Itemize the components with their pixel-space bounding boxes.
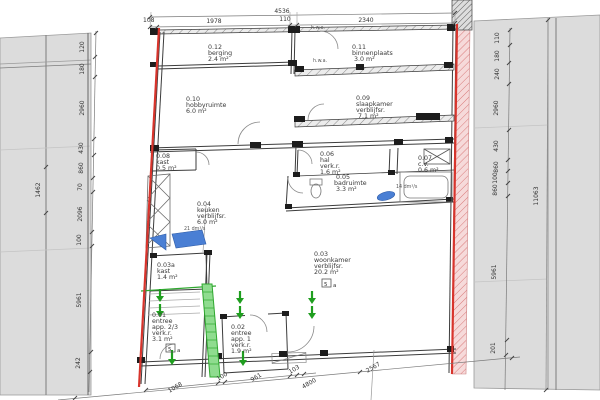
dim-label: 110 (279, 16, 291, 23)
dim-label: 2096 (77, 206, 84, 221)
room-area-label: 3.0 m² (354, 56, 375, 63)
dim-label: 860 (492, 184, 499, 196)
room-area-label: 20.2 m² (314, 269, 339, 276)
dim-label: 180 (79, 63, 86, 75)
dim-label: 2960 (79, 100, 86, 115)
ventilation-note: 21 dm³/s (184, 226, 206, 232)
dim-label: 2567 (365, 361, 382, 375)
dim-label: 100 (76, 234, 83, 246)
dim-label: 110 (494, 32, 501, 44)
dim-label: 240 (494, 68, 501, 80)
dim-label: 4536 (274, 8, 289, 15)
room-area-label: 1.4 m² (157, 274, 178, 281)
dim-label: 860 (78, 162, 85, 174)
floor-plan-drawing: 4536 108 1978 110 2340 120 180 2960 430 … (0, 0, 600, 400)
dim-label: 1978 (206, 18, 221, 25)
room-area-label: 7.1 m² (358, 113, 379, 120)
room-area-label: 0.6 m² (418, 167, 439, 174)
hwa-note: h.w.a. (311, 25, 325, 31)
dim-label: 860 (493, 161, 500, 173)
dim-label: 2340 (358, 17, 373, 24)
element-tag-number: 5 (324, 282, 328, 288)
room-area-label: 6.0 m² (186, 108, 207, 115)
room-area-label: 0.5 m² (156, 165, 177, 172)
dim-label: 4800 (301, 377, 318, 391)
dim-label: 1068 (167, 381, 184, 395)
party-wall-red-lines (139, 24, 457, 387)
element-tag-letter: a (177, 348, 180, 354)
dim-label: 242 (75, 357, 82, 369)
dim-label: 5961 (491, 264, 498, 279)
dim-label: 5961 (76, 292, 83, 307)
dim-label: 100 (492, 172, 499, 184)
room-area-label: 3.3 m² (336, 186, 357, 193)
room-area-label: 6.0 m² (197, 219, 218, 226)
dim-label: 11063 (533, 186, 540, 205)
room-area-label: 3.1 m² (152, 336, 173, 343)
floor-plan-canvas: 4536 108 1978 110 2340 120 180 2960 430 … (0, 0, 600, 400)
dim-label: 180 (494, 50, 501, 62)
dim-label: 70 (77, 183, 84, 191)
fixtures (146, 149, 452, 250)
hwa-note: h.w.a. (313, 58, 327, 64)
washbasin (376, 190, 395, 202)
kitchen-sink (172, 230, 206, 248)
walls (141, 25, 456, 384)
ventilation-note: 14 dm³/s (396, 184, 418, 190)
dim-label: 103 (288, 364, 302, 376)
toilet (310, 179, 322, 198)
dim-label: 108 (143, 17, 155, 24)
element-tag-number: 5 (168, 347, 172, 353)
room-area-label: 2.4 m² (208, 56, 229, 63)
dim-label: 430 (493, 140, 500, 152)
element-tag-letter: a (333, 283, 336, 289)
dim-label: 2960 (493, 100, 500, 115)
dim-label: 120 (79, 41, 86, 53)
dim-label: 1462 (35, 182, 42, 197)
dim-label: 430 (78, 142, 85, 154)
dim-label: 201 (490, 342, 497, 354)
room-area-label: 1.9 m² (231, 348, 252, 355)
